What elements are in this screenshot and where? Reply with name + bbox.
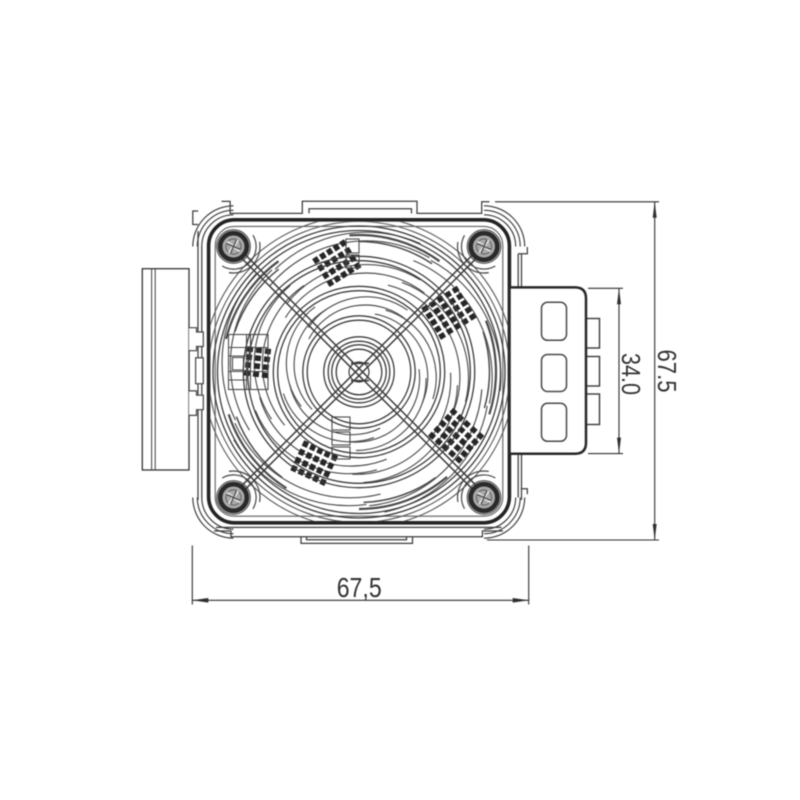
svg-text:67.5: 67.5 xyxy=(652,350,682,393)
svg-text:34.0: 34.0 xyxy=(616,353,646,395)
svg-text:67,5: 67,5 xyxy=(337,572,382,603)
